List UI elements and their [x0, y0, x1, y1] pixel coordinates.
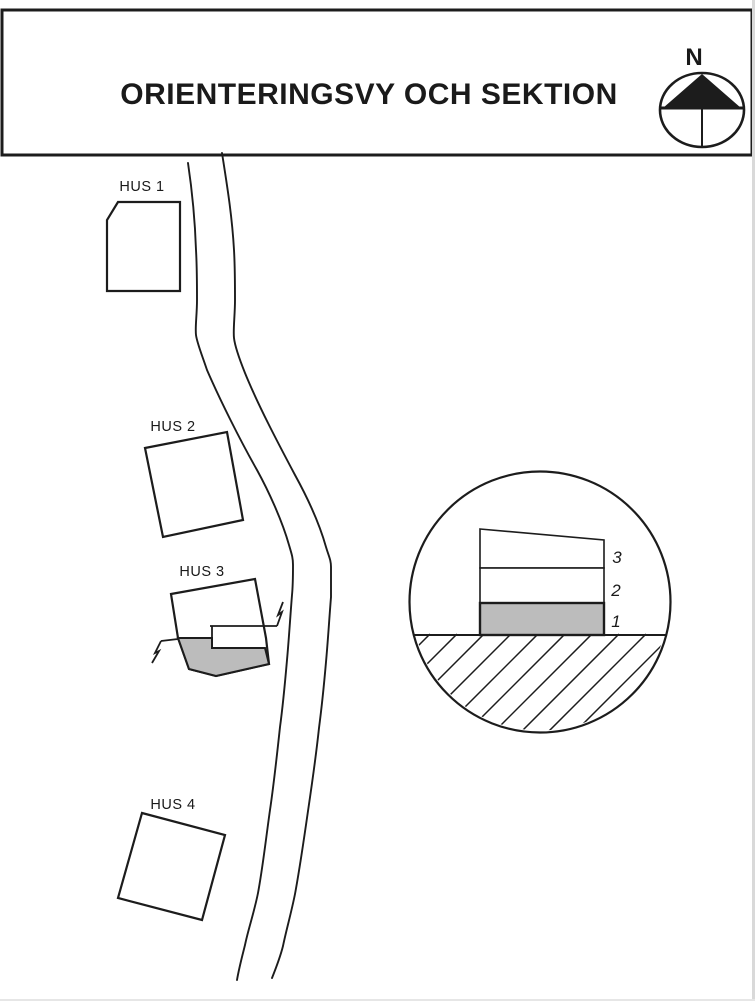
section-building	[480, 529, 604, 635]
building-hus4-label: HUS 4	[150, 797, 195, 813]
section-detail: 3 2 1	[290, 472, 700, 775]
section-cut-zigzag-right	[277, 602, 283, 626]
building-hus3: HUS 3	[152, 564, 283, 676]
road-right-edge	[222, 153, 331, 978]
building-hus3-label: HUS 3	[179, 564, 224, 580]
building-hus2-label: HUS 2	[150, 419, 195, 435]
header-titleblock: ORIENTERINGSVY OCH SEKTION N	[2, 10, 752, 155]
section-cut-left-segment	[161, 639, 178, 641]
building-hus1: HUS 1	[107, 179, 180, 291]
building-hus2: HUS 2	[145, 419, 243, 537]
floor-1-label: 1	[611, 612, 620, 631]
building-hus2-outline	[145, 432, 243, 537]
floor-2-shape	[480, 568, 604, 603]
drawing-sheet: ORIENTERINGSVY OCH SEKTION N HUS 1 HUS 2	[0, 0, 755, 1001]
page-title: ORIENTERINGSVY OCH SEKTION	[120, 78, 618, 111]
floor-3-label: 3	[612, 548, 622, 567]
floor-3-shape	[480, 529, 604, 568]
compass-north-label: N	[685, 44, 702, 71]
floor-1-shape	[480, 603, 604, 635]
building-hus4: HUS 4	[118, 797, 225, 920]
orientation-drawing: ORIENTERINGSVY OCH SEKTION N HUS 1 HUS 2	[0, 0, 755, 1001]
ground-hatching	[290, 634, 700, 774]
section-cut-zigzag-left	[152, 641, 161, 663]
building-hus1-label: HUS 1	[119, 179, 164, 195]
building-hus4-outline	[118, 813, 225, 920]
floor-2-label: 2	[610, 581, 621, 600]
building-hus1-outline	[107, 202, 180, 291]
